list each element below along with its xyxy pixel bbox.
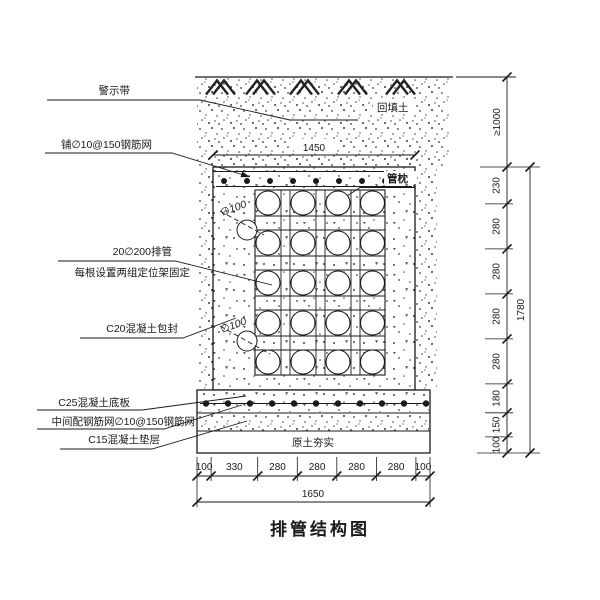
callout-pipe-bank-line2: 每根设置两组定位架固定 [75, 266, 191, 279]
callout-warning-tape: 警示带 [99, 84, 131, 97]
rebar-dot [225, 400, 231, 406]
compacted-soil-label: 原土夯实 [292, 436, 334, 449]
pipe-circle [326, 231, 350, 255]
rebar-dot [335, 400, 341, 406]
pipe-bank-structure-drawing: 回填土 1450 管枕 ∅100 ∅100 原土夯实 1003302802802… [0, 0, 600, 600]
callout-pipe-bank-line1: 20∅200排管 [113, 245, 172, 258]
backfill-label: 回填土 [377, 101, 409, 114]
dim-right-segment-label: 150 [492, 416, 503, 433]
dim-right-segment-label: 280 [492, 263, 503, 280]
dim-bottom-segment-label: 100 [196, 462, 213, 473]
pipe-pillow-label: 管枕 [387, 172, 408, 185]
pipe-circle [326, 271, 350, 295]
drain-pipe-circle-2 [237, 331, 257, 351]
pipe-circle [291, 231, 315, 255]
rebar-dot [336, 178, 342, 184]
pipe-circle [361, 231, 385, 255]
callout-c25-base-slab: C25混凝土底板 [58, 396, 130, 409]
pipe-circle [361, 311, 385, 335]
pipe-circle [291, 311, 315, 335]
rebar-dot [291, 400, 297, 406]
dim-bottom-segment-label: 100 [415, 462, 432, 473]
dim-right-segment-label: 100 [492, 436, 503, 453]
pipe-circle [326, 350, 350, 374]
pipe-circle [326, 191, 350, 215]
callout-c20-encasement: C20混凝土包封 [106, 322, 178, 335]
dim-right-total-label: 1780 [516, 298, 527, 321]
dim-bottom-segment-label: 280 [388, 462, 405, 473]
dim-top-label: 1450 [303, 143, 326, 154]
drawing-title: 排管结构图 [270, 519, 370, 539]
rebar-dot [244, 178, 250, 184]
pipe-circle [361, 350, 385, 374]
dim-right-segment-label: 280 [492, 218, 503, 235]
rebar-dot [423, 400, 429, 406]
dim-right-segment-label: 180 [492, 390, 503, 407]
pipe-circle [256, 231, 280, 255]
dim-bottom-segment-label: 280 [309, 462, 326, 473]
drain-pipe-circle-1 [237, 220, 257, 240]
rebar-dot [359, 178, 365, 184]
backfill-soil-texture-left [199, 167, 213, 390]
callout-top-mesh: 铺∅10@150钢筋网 [61, 138, 152, 151]
rebar-dot [290, 178, 296, 184]
pipe-circle [361, 191, 385, 215]
pipe-circle [326, 311, 350, 335]
pipe-circle [256, 191, 280, 215]
callout-c15-cushion: C15混凝土垫层 [88, 433, 160, 446]
rebar-dot [221, 178, 227, 184]
rebar-dot [267, 178, 273, 184]
c15-cushion-texture [198, 413, 429, 431]
rebar-dot [313, 400, 319, 406]
dim-right-segment-label: 280 [492, 353, 503, 370]
drawing-sheet: 回填土 1450 管枕 ∅100 ∅100 原土夯实 1003302802802… [0, 0, 600, 600]
backfill-soil-texture-right [415, 167, 437, 390]
dim-bottom-segment-label: 330 [226, 462, 243, 473]
rebar-dot [313, 178, 319, 184]
dim-bottom-segment-label: 280 [348, 462, 365, 473]
pipe-circle [291, 350, 315, 374]
rebar-dot [247, 400, 253, 406]
pipe-circle [291, 271, 315, 295]
dim-bottom-total-label: 1650 [302, 489, 325, 500]
pipe-circle [256, 350, 280, 374]
rebar-dot [379, 400, 385, 406]
pipe-circle [291, 191, 315, 215]
dim-right-segment-label: 280 [492, 308, 503, 325]
rebar-dot [269, 400, 275, 406]
dim-bottom-segment-label: 280 [269, 462, 286, 473]
pipe-circle [256, 271, 280, 295]
rebar-dot [357, 400, 363, 406]
dim-right-cover-label: ≥1000 [492, 108, 503, 136]
rebar-dot [401, 400, 407, 406]
c25-slab-texture [198, 391, 429, 412]
dim-right-segment-label: 230 [492, 177, 503, 194]
pipe-circle [256, 311, 280, 335]
pipe-circle [361, 271, 385, 295]
